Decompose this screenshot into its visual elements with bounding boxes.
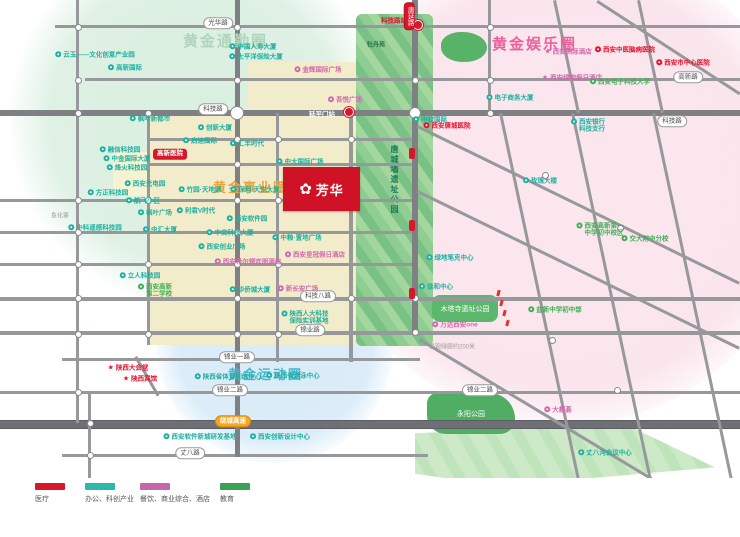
intersection-node [348,295,355,302]
intersection-node [412,329,419,336]
poi-label: 中交科技大厦 [215,229,254,236]
poi-label: 西安软件园 [235,215,268,222]
poi-label: 玫瑰大楼 [531,177,557,184]
poi-commerce[interactable]: 万达西安one [432,321,478,328]
star-icon: ★ [108,364,114,371]
poi-label: 中科遥感科技园 [76,224,122,231]
poi-label: 竹园·天地源 [187,186,222,193]
poi-office[interactable]: 立人科技园 [120,272,161,279]
intersection-node [75,389,82,396]
road-keji6 [0,297,740,301]
road-keji-main [0,110,740,116]
poi-label: 西安洲际酒店 [553,48,592,55]
intersection-node [234,331,241,338]
poi-label: 西安软件新城研发基地 [172,433,237,440]
poi-label: 西安创业广场 [207,243,246,250]
poi-label: 西安希尔顿欢朋酒店 [223,258,282,265]
road-zhangba [62,454,428,457]
poi-dot-icon [108,64,114,70]
intersection-node [234,197,241,204]
road-tangyan [412,0,418,334]
poi-medical[interactable]: 西安唐城医院 [424,122,471,129]
poi-dot-icon [126,197,132,203]
poi-label: 益新中学初中部 [536,306,582,313]
intersection-node [275,136,282,143]
poi-office[interactable]: 中国人寿大厦 [230,43,277,50]
poi-commerce[interactable]: 大都荟 [544,406,572,413]
legend-item-education: 教育 [220,483,250,504]
intersection-node [275,197,282,204]
poi-commerce[interactable]: 西安希尔顿欢朋酒店 [215,258,282,265]
poi-office[interactable]: 西安创业广场 [199,243,246,250]
poi-office[interactable]: 融信科技园 [100,146,141,153]
flower-icon: ✿ [299,182,312,197]
poi-dot-icon [130,115,136,121]
road-keji8 [0,331,740,335]
metro-station-north-icon [413,20,423,30]
poi-dot-icon [138,209,144,215]
poi-label: 万达西安one [440,321,478,328]
poi-label: 交大附中分校 [630,235,669,242]
poi-commerce[interactable]: ★西安洲际酒店 [544,48,591,55]
poi-dot-icon [266,372,272,378]
poi-dot-icon [138,284,144,290]
intersection-node [614,387,621,394]
park-corridor-label: 唐城墙遗址公园 [389,145,400,215]
intersection-node [234,295,241,302]
poi-medical[interactable]: 西安中医脑病医院 [595,46,655,53]
intersection-node [87,420,94,427]
poi-office[interactable]: 西安创新设计中心 [250,433,310,440]
poi-dot-icon [177,207,183,213]
poi-label: 西安高新 第二学校 [146,284,172,299]
poi-office[interactable]: 丈八沟会议中心 [578,449,632,456]
poi-dot-icon [656,59,662,65]
bus-stop-icon [409,148,415,159]
poi-label: 枫叶广场 [146,209,172,216]
poi-dot-icon [285,251,291,257]
poi-education[interactable]: 西安电子科技大学 [590,78,650,85]
star-icon: ★ [542,74,548,81]
poi-label: 中国人寿大厦 [238,43,277,50]
legend-label-commerce: 餐饮、商业综合、酒店 [140,494,210,504]
poi-office[interactable]: 云玉——文化创意产业园 [55,51,135,58]
poi-office[interactable]: 中交科技大厦 [207,229,254,236]
poi-dot-icon [230,286,236,292]
road-name-pill: 锦业路 [295,324,325,336]
intersection-node [348,136,355,143]
metro-station-onroad-label: 延平门站 [309,108,335,118]
intersection-node [75,24,82,31]
poi-office[interactable]: 玫瑰大楼 [523,177,557,184]
legend-item-office: 办公、科创产业 [85,483,134,504]
poi-office[interactable]: 航飞小区 [126,197,160,204]
legend-swatch-office [85,483,115,490]
poi-dot-icon [427,254,433,260]
poi-dot-icon [595,46,601,52]
poi-office[interactable]: 中科遥感科技园 [68,224,122,231]
road-fenghui [349,113,353,362]
legend-item-medical: 医疗 [35,483,65,504]
map-canvas: 唐城墙遗址公园 牡丹苑 木塔寺遗址公园 永阳公园 黄金通勤圈 黄金娱乐圈 黄金事… [0,0,740,537]
poi-dot-icon [68,224,74,230]
star-icon: ★ [123,375,129,382]
poi-dot-icon [622,235,628,241]
poi-dot-icon [487,94,493,100]
poi-office[interactable]: 创新大厦 [198,124,232,131]
road-name-pill: 锦业一路 [219,351,255,363]
poi-dot-icon [215,258,221,264]
bus-stop-icon [409,220,415,231]
intersection-node [487,77,494,84]
poi-label: 方正科技园 [96,189,129,196]
poi-label: 枫叶新都市 [138,115,171,122]
intersection-node [145,261,152,268]
poi-education[interactable]: 西安高新第一 中学初中校区 [577,223,624,238]
poi-office[interactable]: 绿地笔克中心 [427,254,474,261]
gray-note: 景观绿廊约200米 [429,342,475,351]
intersection-node [75,261,82,268]
poi-label: 西安创新设计中心 [258,433,310,440]
intersection-node [487,24,494,31]
poi-medical[interactable]: 西安市中心医院 [656,59,710,66]
bus-stop-icon [409,288,415,299]
intersection-node [549,337,556,344]
poi-dot-icon [120,272,126,278]
poi-office[interactable]: 枫叶新都市 [130,115,171,122]
poi-dot-icon [179,186,185,192]
road-name-pill: 锦业二路 [212,384,248,396]
poi-commerce[interactable]: 吾悦广场 [328,96,362,103]
poi-office[interactable]: 高新国际 [108,64,142,71]
poi-label: 金辉国际广场 [303,66,342,73]
poi-dot-icon [125,180,131,186]
poi-office[interactable]: 佳和中心 [419,283,453,290]
intersection-node [275,331,282,338]
mudanyuan-label: 牡丹苑 [367,40,385,49]
poi-label: 中金国际大厦 [112,155,151,162]
poi-commerce[interactable]: 西安皇冠假日酒店 [285,251,345,258]
poi-label: 西安市中心医院 [664,59,710,66]
legend-swatch-education [220,483,250,490]
poi-office[interactable]: 中汇大厦 [143,226,177,233]
poi-office[interactable]: 利君V时代 [177,207,215,214]
poi-office[interactable]: 华侨城大厦 [230,286,271,293]
poi-dot-icon [571,119,577,125]
intersection-node [230,106,244,120]
poi-education[interactable]: 西安高新 第二学校 [138,284,172,299]
legend: 医疗 办公、科创产业 餐饮、商业综合、酒店 教育 [0,478,740,518]
legend-label-education: 教育 [220,494,250,504]
project-logo-name: 芳华 [316,180,344,199]
legend-swatch-commerce [140,483,170,490]
poi-dot-icon [523,177,529,183]
poi-office[interactable]: 西安银行 科技支行 [571,119,605,134]
project-logo[interactable]: ✿ 芳华 [283,167,360,211]
poi-office[interactable]: 陕西省游泳中心 [266,372,320,379]
poi-label: 立人科技园 [128,272,161,279]
road-jinye2 [0,391,740,394]
poi-label: 西安中医脑病医院 [603,46,655,53]
poi-dot-icon [413,116,419,122]
poi-dot-icon [590,78,596,84]
poi-office[interactable]: 西安软件园 [227,215,268,222]
poi-label: 陕西省游泳中心 [274,372,320,379]
poi-label: 西安高新第一 中学初中校区 [585,223,624,238]
poi-dot-icon [107,164,113,170]
poi-office[interactable]: 中大国际广场 [277,158,324,165]
park-blob-topright [441,32,487,62]
intersection-node [234,77,241,84]
poi-label: 创新大厦 [206,124,232,131]
poi-dot-icon [432,321,438,327]
poi-dot-icon [272,234,278,240]
poi-label: 高新国际 [116,64,142,71]
poi-dot-icon [230,140,236,146]
poi-office[interactable]: 保利·天悦大厦 [230,186,279,193]
poi-label: 吾悦广场 [336,96,362,103]
poi-commerce[interactable]: 金辉国际广场 [295,66,342,73]
poi-dot-icon [199,243,205,249]
poi-dot-icon [100,146,106,152]
poi-label: 利君V时代 [185,207,215,214]
poi-dot-icon [295,66,301,72]
poi-dot-icon [198,124,204,130]
intersection-node [75,197,82,204]
poi-label: 西安光电园 [133,180,166,187]
legend-swatch-medical [35,483,65,490]
poi-office[interactable]: 西安光电园 [125,180,166,187]
poi-office[interactable]: 竹园·天地源 [179,186,222,193]
road-v-sw [88,391,91,487]
poi-office[interactable]: 中金国际大厦 [104,155,151,162]
poi-dot-icon [55,51,61,57]
poi-label: 保利·天悦大厦 [238,186,279,193]
intersection-node [145,331,152,338]
road-name-pill: 唐延路 [404,2,415,30]
gray-note: 鱼化寨 [51,211,69,220]
poi-label: 绿地笔克中心 [435,254,474,261]
poi-label: 佳和中心 [427,283,453,290]
poi-label: 中粮·置地广场 [280,234,321,241]
poi-office[interactable]: 西安软件新城研发基地 [164,433,237,440]
poi-dot-icon [282,311,288,317]
poi-dot-icon [183,137,189,143]
poi-label: 陕西大会堂 [116,364,149,371]
legend-label-office: 办公、科创产业 [85,494,134,504]
road-name-pill: 科技路 [198,103,228,115]
poi-dot-icon [277,158,283,164]
poi-dot-icon [419,283,425,289]
poi-dot-icon [250,433,256,439]
poi-label: 汇丰时代 [238,140,264,147]
poi-office[interactable]: 启迪国际 [183,137,217,144]
intersection-node [75,295,82,302]
road-name-pill: 丈八路 [175,447,205,459]
poi-dot-icon [528,306,534,312]
poi-label: 华侨城大厦 [238,286,271,293]
poi-medical[interactable]: ★陕西宾馆 [123,375,157,382]
poi-dot-icon [230,186,236,192]
poi-label: 陕西宾馆 [131,375,157,382]
poi-dot-icon [229,53,235,59]
poi-dot-icon [230,43,236,49]
road-ringexpressway [0,420,740,429]
poi-label: 启迪国际 [191,137,217,144]
intersection-node [75,110,82,117]
poi-label: 西安唐城医院 [432,122,471,129]
poi-dot-icon [328,96,334,102]
poi-dot-icon [424,122,430,128]
poi-dot-icon [578,449,584,455]
poi-label: 西安电子科技大学 [598,78,650,85]
poi-label: 融信科技园 [108,146,141,153]
poi-dot-icon [227,215,233,221]
poi-label: 航飞小区 [134,197,160,204]
poi-label: 烽火科技园 [115,164,148,171]
poi-dot-icon [207,229,213,235]
legend-label-medical: 医疗 [35,494,65,504]
poi-dot-icon [577,223,583,229]
star-icon: ★ [544,48,550,55]
poi-education[interactable]: 益新中学初中部 [528,306,582,313]
road-name-pill: 高新路 [673,71,703,83]
poi-label: 太平洋保险大厦 [237,53,283,60]
metro-station-onroad-icon [344,107,354,117]
poi-dot-icon [143,226,149,232]
poi-office[interactable]: 枫叶广场 [138,209,172,216]
poi-office[interactable]: 陕西省体育训练中心 [195,373,262,380]
poi-label: 新长安广场 [286,285,319,292]
poi-office[interactable]: 中粮·置地广场 [272,234,321,241]
poi-label: 中大国际广场 [285,158,324,165]
poi-office[interactable]: 陕西人大科技 保险实训基地 [282,311,329,326]
poi-office[interactable]: 电子商务大厦 [487,94,534,101]
intersection-node [234,161,241,168]
poi-dot-icon [195,373,201,379]
poi-office[interactable]: 方正科技园 [88,189,129,196]
poi-dot-icon [278,285,284,291]
intersection-node [87,452,94,459]
poi-label: 陕西人大科技 保险实训基地 [290,311,329,326]
intersection-node [412,77,419,84]
poi-dot-icon [164,433,170,439]
poi-office[interactable]: 烽火科技园 [107,164,148,171]
poi-office[interactable]: 太平洋保险大厦 [229,53,283,60]
poi-dot-icon [544,406,550,412]
poi-office[interactable]: 汇丰时代 [230,140,264,147]
road-name-pill: 光华路 [203,17,233,29]
poi-medical[interactable]: ★陕西大会堂 [108,364,149,371]
poi-label: 大都荟 [552,406,572,413]
road-name-pill: 锦业二路 [462,384,498,396]
poi-label: 丈八沟会议中心 [586,449,632,456]
poi-label: 云玉——文化创意产业园 [63,51,135,58]
road-v-west [76,0,79,423]
legend-item-commerce: 餐饮、商业综合、酒店 [140,483,210,504]
poi-commerce[interactable]: 新长安广场 [278,285,319,292]
hospital-pill: 高新医院 [153,149,187,160]
road-name-pill: 绕城高速 [215,415,251,427]
poi-dot-icon [88,189,94,195]
poi-label: 西安银行 科技支行 [579,119,605,134]
poi-label: 中汇大厦 [151,226,177,233]
poi-label: 电子商务大厦 [495,94,534,101]
poi-dot-icon [104,155,110,161]
intersection-node [75,77,82,84]
poi-label: 陕西省体育训练中心 [203,373,262,380]
intersection-node [487,110,494,117]
poi-education[interactable]: 交大附中分校 [622,235,669,242]
intersection-node [75,331,82,338]
road-name-pill: 科技路 [657,115,687,127]
poi-label: 西安皇冠假日酒店 [293,251,345,258]
